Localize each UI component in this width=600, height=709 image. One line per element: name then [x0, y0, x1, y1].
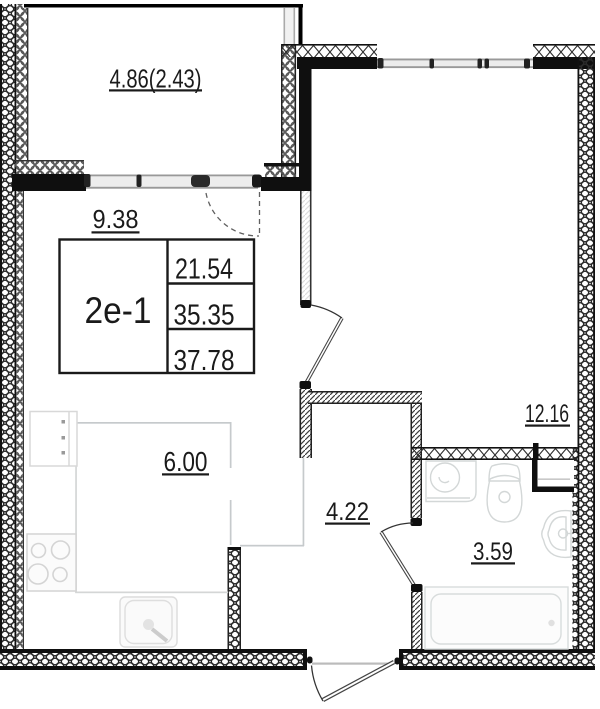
- svg-text:37.78: 37.78: [174, 345, 235, 377]
- svg-text:12.16: 12.16: [525, 400, 569, 428]
- svg-text:21.54: 21.54: [175, 254, 233, 286]
- svg-text:9.38: 9.38: [93, 204, 139, 234]
- svg-text:4.22: 4.22: [326, 498, 369, 526]
- svg-text:35.35: 35.35: [174, 300, 235, 332]
- svg-text:6.00: 6.00: [164, 446, 208, 477]
- svg-text:2e-1: 2e-1: [85, 290, 152, 331]
- svg-text:3.59: 3.59: [473, 538, 513, 566]
- svg-text:4.86(2.43): 4.86(2.43): [110, 64, 202, 94]
